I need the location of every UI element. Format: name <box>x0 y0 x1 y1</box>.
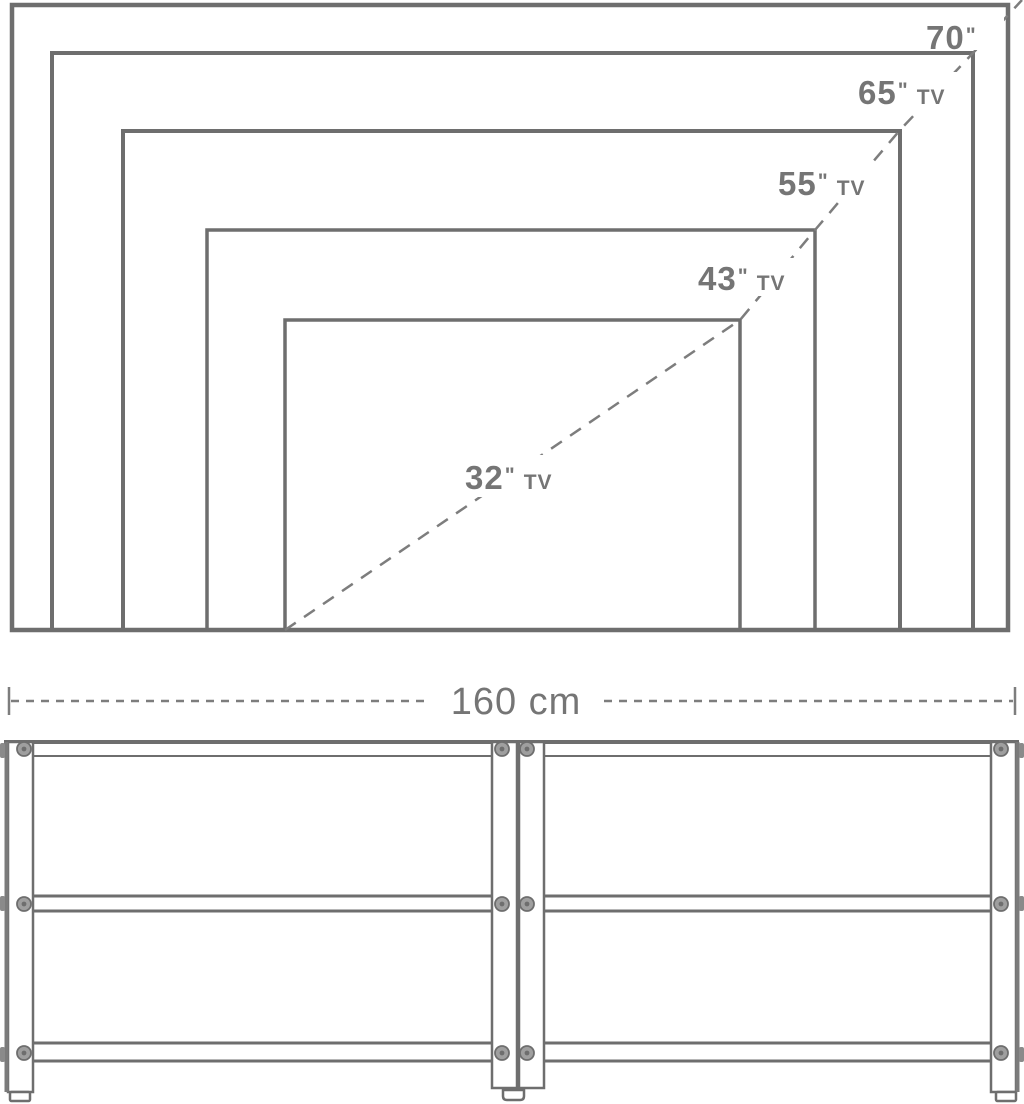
center-leg-right <box>519 742 544 1088</box>
width-dimension: 160 cm <box>9 681 1015 723</box>
screw-center <box>525 1051 530 1056</box>
width-dimension-label: 160 cm <box>451 681 582 723</box>
product-dimension-diagram: 70" 65"TV 55"TV 43"TV 32"TV 160 cm <box>0 0 1024 1104</box>
screw-center <box>999 902 1004 907</box>
tv-stand-front-view <box>0 742 1024 1101</box>
left-foot <box>10 1092 30 1101</box>
tab-left-bottom <box>0 1047 5 1062</box>
right-leg <box>991 742 1016 1092</box>
tv-rect-65in <box>52 53 973 630</box>
tab-right-top <box>1019 743 1024 758</box>
left-leg <box>8 742 33 1092</box>
screw-center <box>525 747 530 752</box>
screw-center <box>525 902 530 907</box>
tab-left-top <box>0 743 5 758</box>
center-foot <box>503 1090 524 1100</box>
screw-center <box>22 747 27 752</box>
screw-center <box>999 747 1004 752</box>
tv-rect-55in <box>123 131 900 630</box>
center-leg-left <box>492 742 517 1088</box>
screw-center <box>22 1051 27 1056</box>
stand-feet <box>10 1090 1016 1101</box>
stand-legs <box>7 742 1018 1092</box>
right-foot <box>996 1092 1016 1101</box>
diagram-svg: 70" 65"TV 55"TV 43"TV 32"TV 160 cm <box>0 0 1024 1104</box>
tv-label-70in: 70" <box>926 19 976 56</box>
screw-center <box>500 1051 505 1056</box>
screw-center <box>500 747 505 752</box>
screw-center <box>999 1051 1004 1056</box>
tab-right-bottom <box>1019 1047 1024 1062</box>
screw-center <box>22 902 27 907</box>
screw-center <box>500 902 505 907</box>
tab-right-middle <box>1019 896 1024 911</box>
tab-left-middle <box>0 896 5 911</box>
